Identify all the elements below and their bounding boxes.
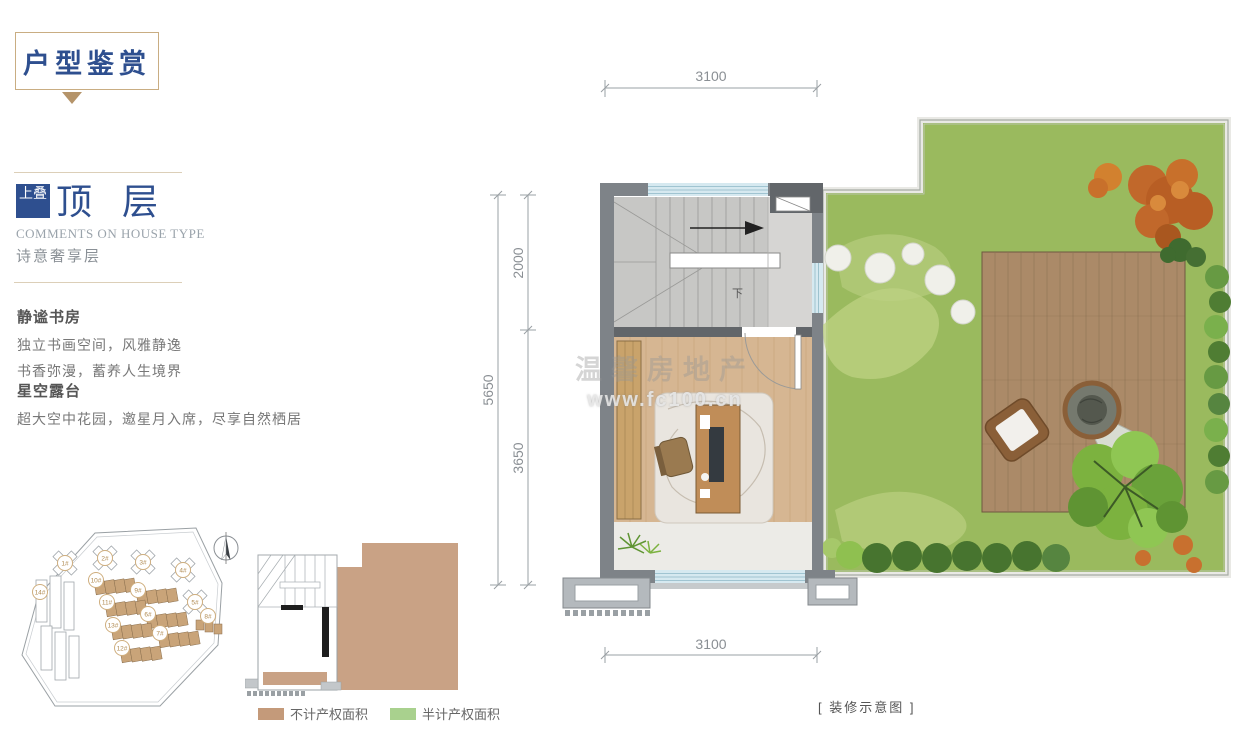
stack-type-badge: 上叠 [16,184,50,218]
divider-top [14,172,182,173]
stair-direction-label: 下 [732,288,743,300]
building-label: 14# [35,590,46,597]
dim-left-lower: 3650 [510,442,526,473]
building-label: 8# [204,614,212,621]
feature-title: 星空露台 [17,380,417,401]
fire-pit-table [1065,383,1119,437]
key-teeth [247,691,305,696]
feature-line: 超大空中花园，邀星月入席，尽享自然栖居 [17,409,417,429]
dim-bottom: 3100 [695,636,726,652]
page-title: 户型鉴赏 [23,42,151,81]
subheading-en: COMMENTS ON HOUSE TYPE [16,226,205,242]
building-label: 5# [191,600,199,607]
building-label: 6# [144,612,152,619]
dim-left-total: 5650 [480,374,496,405]
dim-left-upper: 2000 [510,247,526,278]
patio-floor [614,522,812,570]
feature-section-study: 静谧书房 独立书画空间，风雅静逸 书香弥漫，蓄养人生境界 [17,306,417,387]
divider-bottom [14,282,182,283]
building-label: 1# [61,561,69,568]
feature-line: 书香弥漫，蓄养人生境界 [17,361,417,381]
key-plan [245,522,475,707]
building-label: 2# [101,556,109,563]
key-terrace-area [337,543,458,690]
building: 下 [563,183,857,616]
site-plan: 1# 2# 3# 4# 5# 8# 14# 10# 9# 11# 6# 13# … [8,520,240,720]
decoration-caption: [ 装修示意图 ] [818,697,915,716]
subheading-cn: 诗意奢享层 [16,245,101,266]
legend: 不计产权面积 半计产权面积 [258,704,500,723]
interior-wall [614,327,823,337]
feature-line: 独立书画空间，风雅静逸 [17,335,417,355]
entry-block [770,183,823,213]
monitor [709,427,724,482]
legend-swatch-green [390,708,416,720]
floor-plan: 下 [480,25,1242,725]
floor-heading: 顶 层 [56,184,168,220]
key-patio-strip [263,672,327,685]
building-label: 9# [134,588,142,595]
feature-section-terrace: 星空露台 超大空中花园，邀星月入席，尽享自然栖居 [17,380,417,435]
dim-top: 3100 [695,68,726,84]
door-leaf [795,335,801,389]
heading-row: 上叠 顶 层 [16,184,168,220]
building-label: 4# [179,568,187,575]
building-label: 10# [91,578,102,585]
compass-icon [214,532,238,564]
desk [696,405,740,513]
page-canvas: 户型鉴赏 上叠 顶 层 COMMENTS ON HOUSE TYPE 诗意奢享层… [0,0,1242,752]
building-label: 3# [139,560,147,567]
legend-swatch-tan [258,708,284,720]
bookshelf [617,341,641,519]
building-label: 13# [108,623,119,630]
legend-label: 不计产权面积 [290,704,368,723]
building-label: 11# [102,600,113,607]
feature-title: 静谧书房 [17,306,417,327]
building-label: 7# [156,631,164,638]
title-box: 户型鉴赏 [15,32,159,90]
title-arrow-icon [62,92,82,104]
building-label: 12# [117,646,128,653]
